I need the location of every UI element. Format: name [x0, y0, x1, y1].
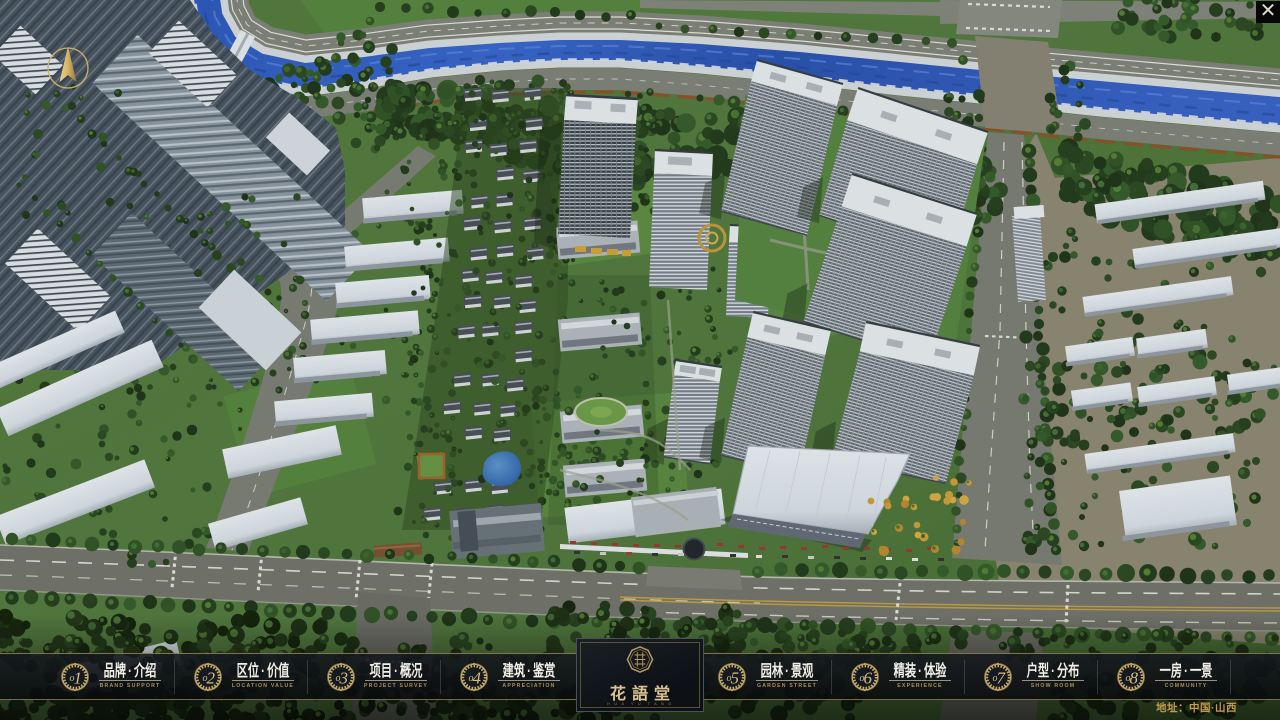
svg-text:2: 2 — [207, 669, 216, 688]
svg-text:4: 4 — [473, 669, 482, 688]
svg-text:1: 1 — [74, 669, 83, 688]
svg-text:3: 3 — [339, 669, 349, 688]
svg-text:5: 5 — [731, 669, 740, 688]
svg-text:6: 6 — [864, 669, 873, 688]
svg-text:8: 8 — [1130, 669, 1139, 688]
